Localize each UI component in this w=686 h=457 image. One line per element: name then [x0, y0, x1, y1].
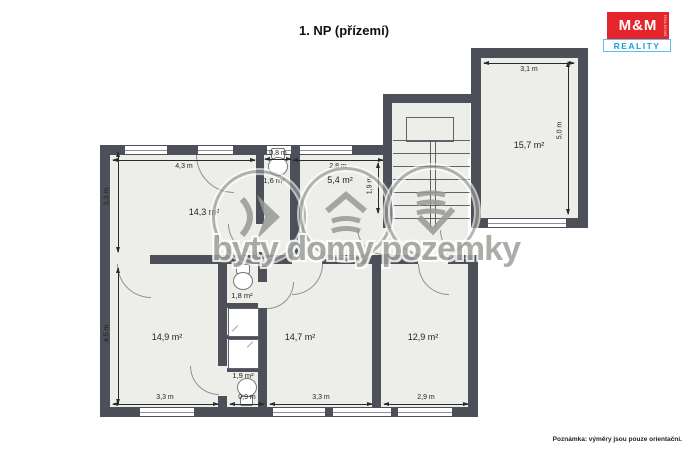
room-area-label: 14,9 m² — [132, 332, 202, 342]
service-box — [228, 339, 259, 369]
dim-label: 0,8 m — [258, 150, 298, 157]
dim-line — [384, 404, 468, 405]
toilet-icon — [233, 272, 253, 290]
window — [125, 146, 167, 154]
window — [333, 408, 391, 416]
dim-line — [484, 63, 574, 64]
room-area-label: 1,8 m² — [220, 291, 264, 300]
wall — [372, 264, 381, 407]
dim-line — [118, 268, 119, 404]
dim-label: 0,9 m — [227, 394, 267, 401]
disclaimer-note: Poznámka: výměry jsou pouze orientační. — [442, 436, 682, 443]
stair-tread — [393, 140, 470, 141]
floorplan-page: 1. NP (přízemí) M&M HOLDING REALITY — [0, 0, 686, 457]
page-title: 1. NP (přízemí) — [264, 23, 424, 38]
stair-landing — [406, 117, 454, 142]
dim-label: 3,3 m — [104, 177, 111, 217]
logo-reality-band: REALITY — [603, 39, 671, 52]
room-area-label: 12,9 m² — [388, 332, 458, 342]
wall — [468, 255, 478, 417]
dim-line — [118, 152, 119, 252]
dim-line — [113, 160, 255, 161]
window — [198, 146, 233, 154]
dim-line — [113, 404, 218, 405]
room-area-label: 15,7 m² — [494, 140, 564, 150]
dim-label: 4,5 m — [104, 314, 111, 354]
dim-label: 3,3 m — [125, 394, 205, 401]
dim-label: 3,1 m — [489, 66, 569, 73]
logo-reality-text: REALITY — [614, 41, 661, 51]
wall — [471, 48, 588, 58]
mm-reality-logo: M&M HOLDING — [607, 12, 669, 39]
service-box — [228, 308, 259, 337]
window — [300, 146, 352, 154]
logo-mm-text: M&M — [619, 17, 658, 34]
window — [398, 408, 452, 416]
dim-line — [568, 62, 569, 214]
room-area-label: 1,9 m² — [221, 371, 265, 380]
stair-tread — [393, 153, 470, 154]
window — [140, 408, 194, 416]
wall — [578, 48, 588, 228]
dim-line — [230, 404, 264, 405]
dim-line — [270, 404, 372, 405]
dim-label: 3,3 m — [281, 394, 361, 401]
window — [488, 219, 566, 227]
window — [273, 408, 325, 416]
watermark-text: byty domy pozemky — [212, 230, 520, 269]
dim-line — [293, 160, 383, 161]
dim-label: 2,9 m — [386, 394, 466, 401]
logo-holding-text: HOLDING — [663, 15, 668, 37]
wall — [383, 94, 471, 103]
dim-label: 4,3 m — [144, 163, 224, 170]
room-area-label: 14,7 m² — [265, 332, 335, 342]
dim-line — [265, 159, 291, 160]
